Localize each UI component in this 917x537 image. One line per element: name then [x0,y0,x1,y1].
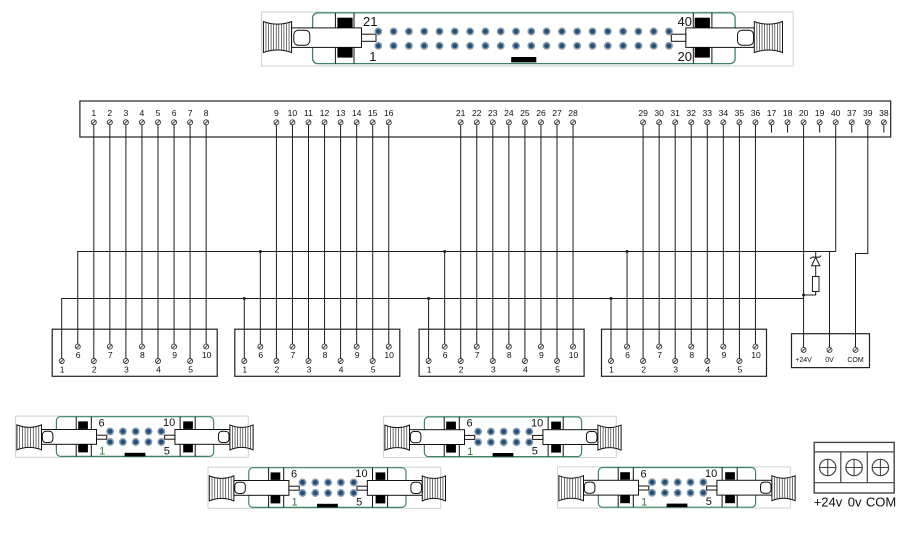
svg-text:9: 9 [539,350,544,360]
svg-text:26: 26 [536,108,546,118]
svg-text:35: 35 [735,108,745,118]
svg-text:6: 6 [99,418,105,430]
svg-text:20: 20 [799,108,809,118]
svg-text:4: 4 [523,365,528,375]
svg-text:10: 10 [355,468,367,480]
svg-text:4: 4 [140,108,145,118]
svg-text:19: 19 [815,108,825,118]
svg-text:14: 14 [352,108,362,118]
svg-text:0v: 0v [848,495,862,510]
svg-text:5: 5 [706,496,712,508]
svg-text:40: 40 [831,108,841,118]
svg-text:4: 4 [339,365,344,375]
svg-text:1: 1 [60,365,65,375]
svg-text:22: 22 [472,108,482,118]
svg-text:0V: 0V [825,357,834,364]
svg-text:3: 3 [673,365,678,375]
svg-text:COM: COM [866,495,896,510]
svg-text:10: 10 [569,350,579,360]
svg-text:10: 10 [384,350,394,360]
svg-text:29: 29 [638,108,648,118]
svg-text:8: 8 [140,350,145,360]
svg-text:8: 8 [204,108,209,118]
svg-text:1: 1 [427,365,432,375]
svg-text:8: 8 [323,350,328,360]
svg-text:15: 15 [368,108,378,118]
svg-text:3: 3 [124,365,129,375]
svg-text:32: 32 [686,108,696,118]
svg-text:5: 5 [532,446,538,458]
svg-text:10: 10 [288,108,298,118]
svg-text:3: 3 [124,108,129,118]
svg-text:1: 1 [369,49,376,64]
svg-text:6: 6 [641,468,647,480]
svg-text:11: 11 [304,108,313,118]
svg-text:21: 21 [363,14,377,29]
svg-text:2: 2 [92,365,97,375]
svg-text:38: 38 [879,108,889,118]
svg-text:1: 1 [609,365,614,375]
svg-text:2: 2 [459,365,464,375]
svg-text:1: 1 [292,497,298,509]
svg-text:+24V: +24V [795,357,812,364]
svg-text:9: 9 [172,350,177,360]
svg-text:39: 39 [863,108,873,118]
svg-text:37: 37 [847,108,857,118]
svg-text:5: 5 [555,365,560,375]
svg-text:5: 5 [188,365,193,375]
svg-text:4: 4 [156,365,161,375]
svg-text:27: 27 [552,108,562,118]
svg-text:7: 7 [108,350,113,360]
svg-text:8: 8 [507,350,512,360]
svg-text:16: 16 [384,108,394,118]
svg-text:20: 20 [678,49,692,64]
svg-text:10: 10 [163,417,175,429]
svg-text:6: 6 [625,350,630,360]
svg-text:30: 30 [654,108,664,118]
svg-text:5: 5 [738,365,743,375]
svg-text:7: 7 [188,108,193,118]
svg-text:12: 12 [320,108,330,118]
svg-text:21: 21 [456,108,466,118]
svg-text:8: 8 [689,350,694,360]
svg-text:+24v: +24v [814,495,843,510]
svg-text:3: 3 [491,365,496,375]
svg-text:6: 6 [258,350,263,360]
svg-text:6: 6 [172,108,177,118]
svg-text:3: 3 [307,365,312,375]
svg-text:9: 9 [722,350,727,360]
svg-text:1: 1 [467,446,473,458]
svg-text:33: 33 [703,108,713,118]
svg-text:10: 10 [202,350,212,360]
svg-text:18: 18 [783,108,793,118]
svg-text:10: 10 [531,417,543,429]
svg-text:2: 2 [275,365,280,375]
svg-text:4: 4 [705,365,710,375]
svg-text:13: 13 [336,108,346,118]
svg-text:COM: COM [847,357,864,364]
svg-text:5: 5 [356,496,362,508]
svg-text:1: 1 [641,496,647,508]
svg-text:6: 6 [76,350,81,360]
svg-text:25: 25 [520,108,530,118]
svg-text:24: 24 [504,108,514,118]
svg-text:6: 6 [291,469,297,481]
svg-text:1: 1 [99,446,105,458]
svg-text:2: 2 [641,365,646,375]
svg-text:1: 1 [91,108,96,118]
svg-text:1: 1 [242,365,247,375]
svg-text:10: 10 [705,468,717,480]
svg-text:40: 40 [678,14,692,29]
svg-text:28: 28 [568,108,578,118]
svg-text:23: 23 [488,108,498,118]
svg-text:5: 5 [371,365,376,375]
svg-text:2: 2 [107,108,112,118]
svg-text:17: 17 [767,108,777,118]
svg-text:34: 34 [719,108,729,118]
svg-text:31: 31 [670,108,680,118]
svg-text:7: 7 [475,350,480,360]
svg-text:36: 36 [751,108,761,118]
svg-text:6: 6 [443,350,448,360]
svg-text:7: 7 [291,350,296,360]
svg-text:10: 10 [751,350,761,360]
svg-text:7: 7 [657,350,662,360]
svg-text:5: 5 [156,108,161,118]
svg-text:5: 5 [164,445,170,457]
svg-text:6: 6 [467,418,473,430]
svg-text:9: 9 [274,108,279,118]
svg-text:9: 9 [355,350,360,360]
